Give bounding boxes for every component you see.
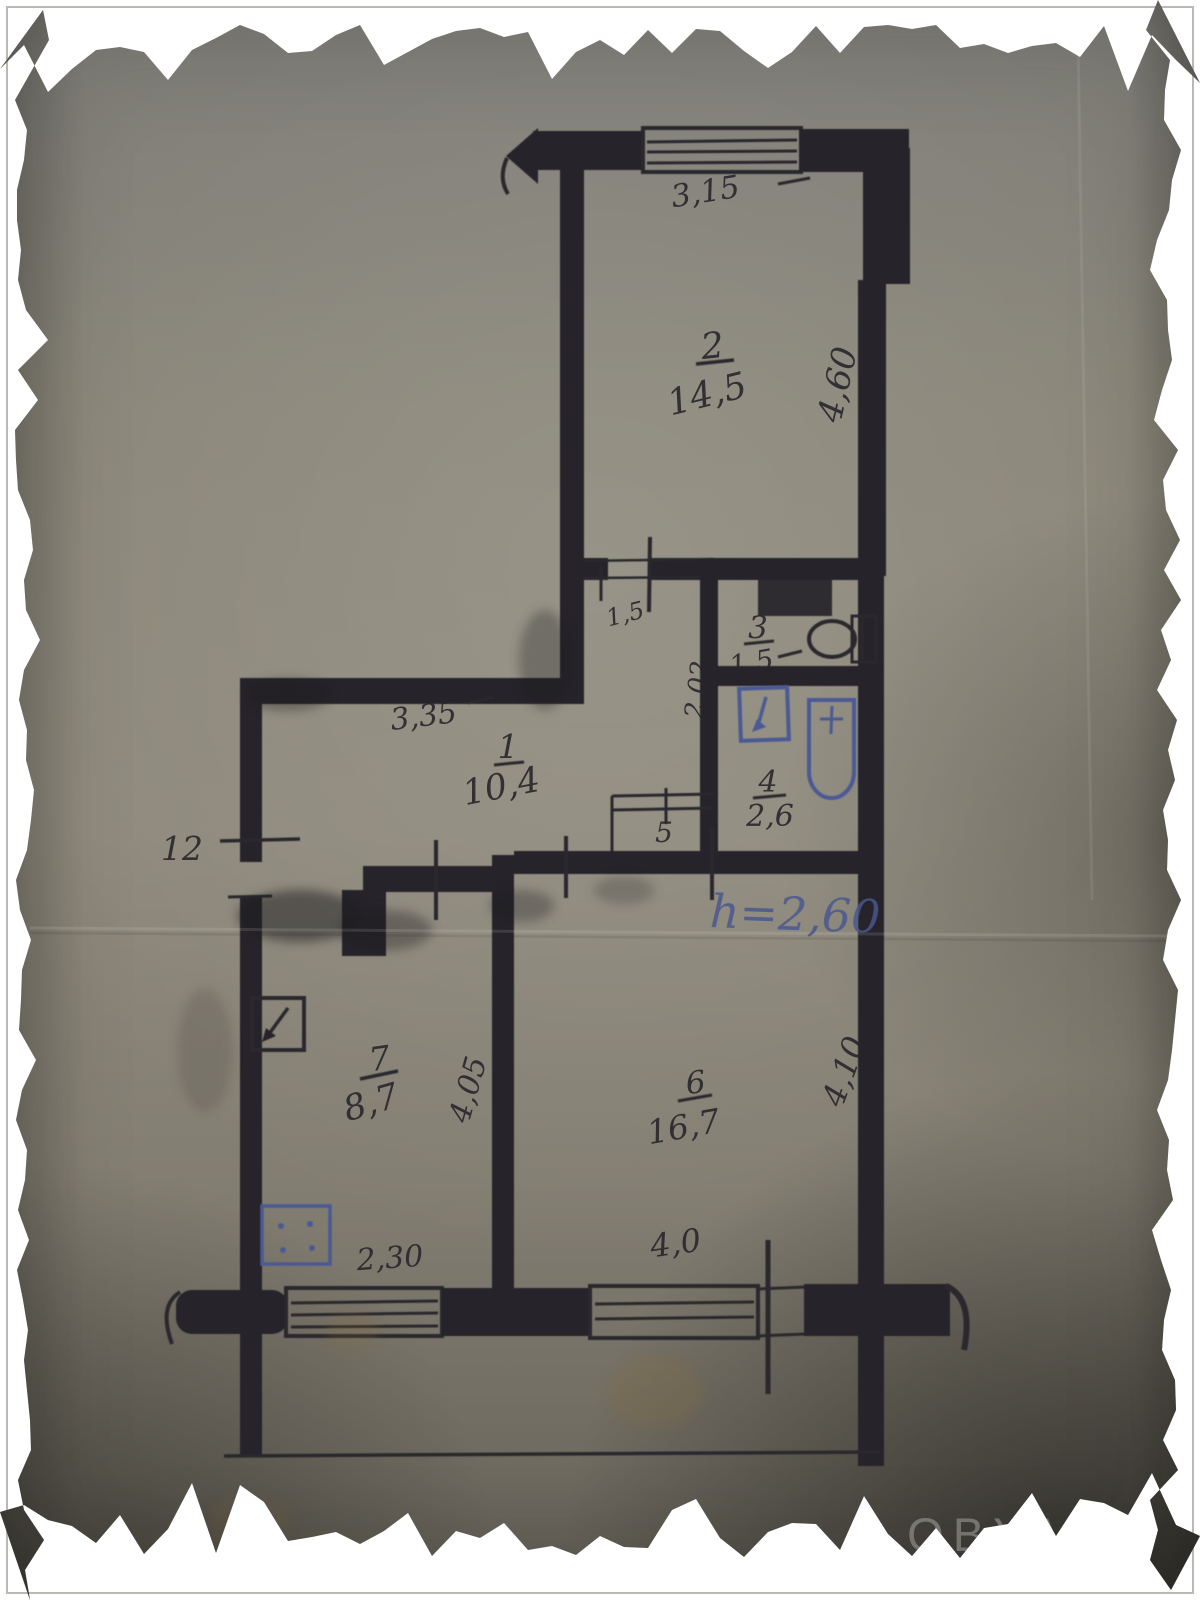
wall-left-lower	[240, 896, 262, 1456]
paper-photo: 2 14,5 3,15 4,60 3 1,5 1,5 4 2,6 2,02 1 …	[0, 0, 1200, 1600]
vent-shaft	[758, 578, 832, 616]
note-ceiling-height: h=2,60	[709, 884, 881, 944]
room-5-number: 5	[655, 816, 673, 849]
dim-room6-window: 4,0	[647, 1221, 704, 1266]
wall-top-left-segment	[533, 131, 645, 170]
dim-hall-width: 3,35	[388, 695, 459, 738]
wall-right-mid	[858, 280, 886, 576]
wall-room6-top	[514, 851, 884, 874]
photo-of-floor-plan: 2 14,5 3,15 4,60 3 1,5 1,5 4 2,6 2,02 1 …	[0, 0, 1200, 1600]
toilet-icon	[809, 621, 855, 657]
wall-right-upper	[863, 148, 910, 284]
washbasin-icon	[739, 687, 789, 741]
wall-right-bottom	[858, 868, 884, 1466]
dim-room2-side: 4,60	[810, 343, 866, 427]
left-wall-tick	[220, 839, 300, 841]
window-room6	[590, 1286, 758, 1338]
lower-outline	[224, 1452, 880, 1456]
room-7-number: 7	[366, 1038, 392, 1080]
room-3-number: 3	[748, 610, 768, 646]
wall-room6-left	[492, 855, 514, 1295]
room-4-area: 2,6	[745, 799, 794, 834]
closet-wall	[612, 794, 714, 796]
labels-layer: 2 14,5 3,15 4,60 3 1,5 1,5 4 2,6 2,02 1 …	[161, 169, 881, 1278]
dim-kitchen-side: 4,05	[442, 1053, 494, 1128]
arrow-tail	[503, 158, 508, 194]
dim-room2-window: 3,15	[668, 169, 742, 215]
floor-plan-drawing: 2 14,5 3,15 4,60 3 1,5 1,5 4 2,6 2,02 1 …	[0, 0, 1200, 1600]
room-1-number: 1	[498, 727, 519, 766]
watermark-text: OBYAVA	[907, 1507, 1144, 1562]
door-tick-hall	[649, 537, 650, 612]
room-4-number: 4	[757, 765, 777, 800]
room-1-area: 10,4	[459, 760, 543, 814]
room-6-number: 6	[684, 1064, 707, 1102]
note-left-number: 12	[161, 829, 203, 868]
room-6-area: 16,7	[644, 1101, 723, 1152]
room-2-area: 14,5	[663, 365, 751, 424]
room-2-number: 2	[698, 325, 726, 368]
creases-layer	[30, 40, 1170, 941]
stove-icon	[262, 1206, 330, 1264]
dim-hall-door: 1,5	[603, 596, 647, 632]
room-7-area: 8,7	[339, 1076, 404, 1130]
dim-kitchen-window: 2,30	[354, 1239, 424, 1279]
wall-room2-left	[560, 163, 584, 703]
